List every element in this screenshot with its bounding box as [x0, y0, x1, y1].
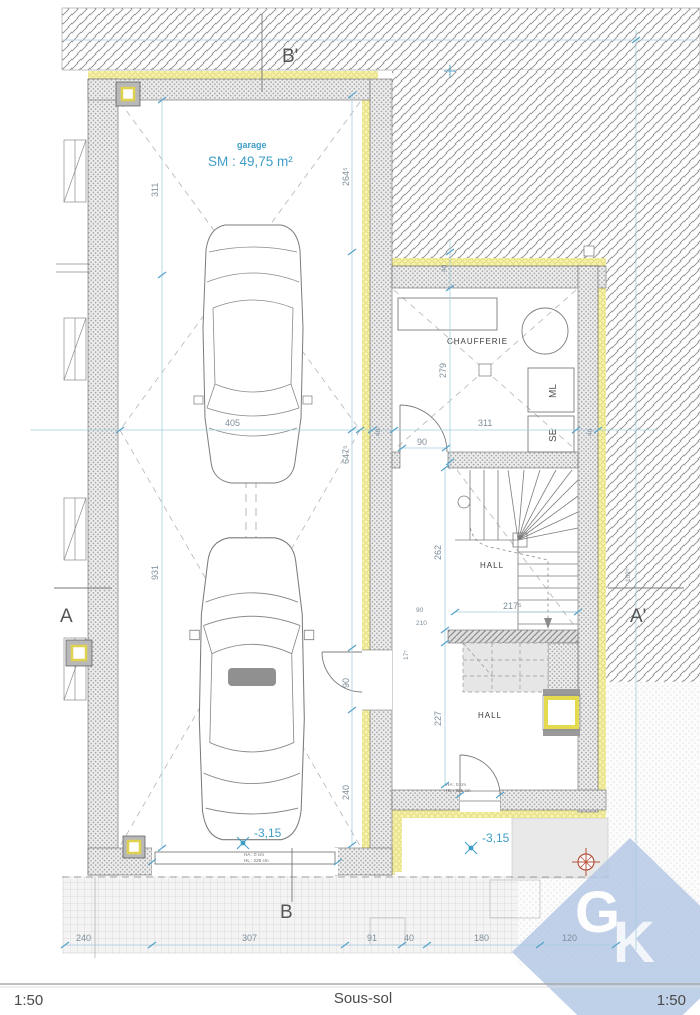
plan-drawing: G K garage SM : 49,75 m²	[0, 0, 700, 1015]
garage-left-wall	[88, 79, 118, 875]
car-top	[194, 225, 312, 483]
hall-lower-label: HALL	[478, 711, 502, 720]
dim-step: 17⁵	[403, 650, 410, 660]
dim-bottom-2: 91	[367, 933, 377, 943]
section-b: B	[280, 902, 293, 923]
dim-garage-rear: 240	[341, 785, 351, 800]
footer-scale-right: 1:50	[657, 992, 686, 1009]
court-door-note-hl: HL : 225 cm	[446, 788, 471, 793]
newel-post	[458, 496, 470, 508]
garage-area: SM : 49,75 m²	[208, 154, 293, 169]
dim-wall-top: 40	[441, 264, 448, 272]
annex-top-wall	[392, 266, 606, 288]
dim-garage-front: 311	[150, 183, 160, 197]
hall-upper-label: HALL	[480, 561, 504, 570]
garage-hall-door-opening	[362, 650, 392, 710]
car-sunroof	[228, 668, 276, 686]
dim-garage-side-lower: 647⁵	[341, 445, 351, 464]
dim-stair-door-height: 210	[416, 620, 427, 627]
ml-label: ML	[548, 384, 559, 398]
dim-chaufferie-depth: 279	[438, 363, 448, 378]
annex-right-wall	[578, 266, 598, 812]
dim-stair-door-width: 90	[416, 607, 424, 614]
section-a: A	[60, 606, 73, 627]
dim-hall-depth: 227	[433, 711, 443, 726]
dim-bottom-5: 120	[562, 933, 577, 943]
court-level: -3,15	[482, 831, 510, 845]
dim-garage-door: 90	[341, 678, 351, 688]
level-marker-court-icon	[465, 842, 477, 854]
garage-gate-note-hl: HL : 225 cm	[244, 858, 269, 863]
garage-right-wall	[370, 79, 392, 875]
footer-scale-left: 1:50	[14, 992, 43, 1009]
garage-name: garage	[237, 140, 267, 150]
annex-bottom-wall-left	[392, 790, 460, 810]
terrace-slab	[512, 818, 608, 878]
lightwell-window	[546, 698, 577, 727]
dim-bottom-4: 180	[474, 933, 489, 943]
dim-garage-length: 931	[150, 565, 160, 580]
section-a-prime: A'	[630, 606, 646, 627]
dim-stair-width: 217⁵	[503, 601, 522, 611]
dim-bottom-1: 307	[242, 933, 257, 943]
dim-site-right: 102⁵	[625, 568, 632, 582]
dim-chaufferie-door: 90	[417, 437, 427, 447]
garage-bottom-wall-right	[335, 848, 392, 875]
chaufferie-label: CHAUFFERIE	[447, 337, 508, 346]
dim-stair-depth: 262	[433, 545, 443, 560]
garage-room: garage SM : 49,75 m² -3,15 HA : 0 cm HL …	[120, 102, 360, 863]
boiler-tank	[522, 308, 568, 354]
workbench	[398, 298, 497, 330]
annex-bottom-wall-right	[500, 790, 606, 810]
dim-bottom-3: 40	[404, 933, 414, 943]
section-b-prime: B'	[282, 46, 298, 67]
dim-chaufferie-width: 311	[478, 418, 492, 428]
stair-lintel	[448, 630, 578, 643]
under-stair	[463, 643, 548, 692]
dim-bottom-0: 240	[76, 933, 91, 943]
stair-walkline	[470, 480, 548, 620]
footer-title: Sous-sol	[334, 990, 392, 1007]
car-bottom	[190, 538, 314, 840]
walkline-arrow-icon	[544, 618, 552, 629]
garage-gate-note-ha: HA : 0 cm	[244, 852, 264, 857]
stair-side-block	[548, 643, 578, 690]
chaufferie-hall-wall	[448, 452, 578, 468]
dim-garage-width: 405	[225, 418, 240, 428]
floor-plan-page: { "labels": { "garage_name": "garage", "…	[0, 0, 700, 1015]
dim-garage-side-upper: 264⁵	[341, 167, 351, 186]
dim-wall-left: 40⁵	[375, 426, 382, 436]
dim-wall-right: 40	[587, 428, 594, 436]
court-door-note-ha: HA : 0 cm	[446, 782, 466, 787]
garage-level: -3,15	[254, 826, 282, 840]
